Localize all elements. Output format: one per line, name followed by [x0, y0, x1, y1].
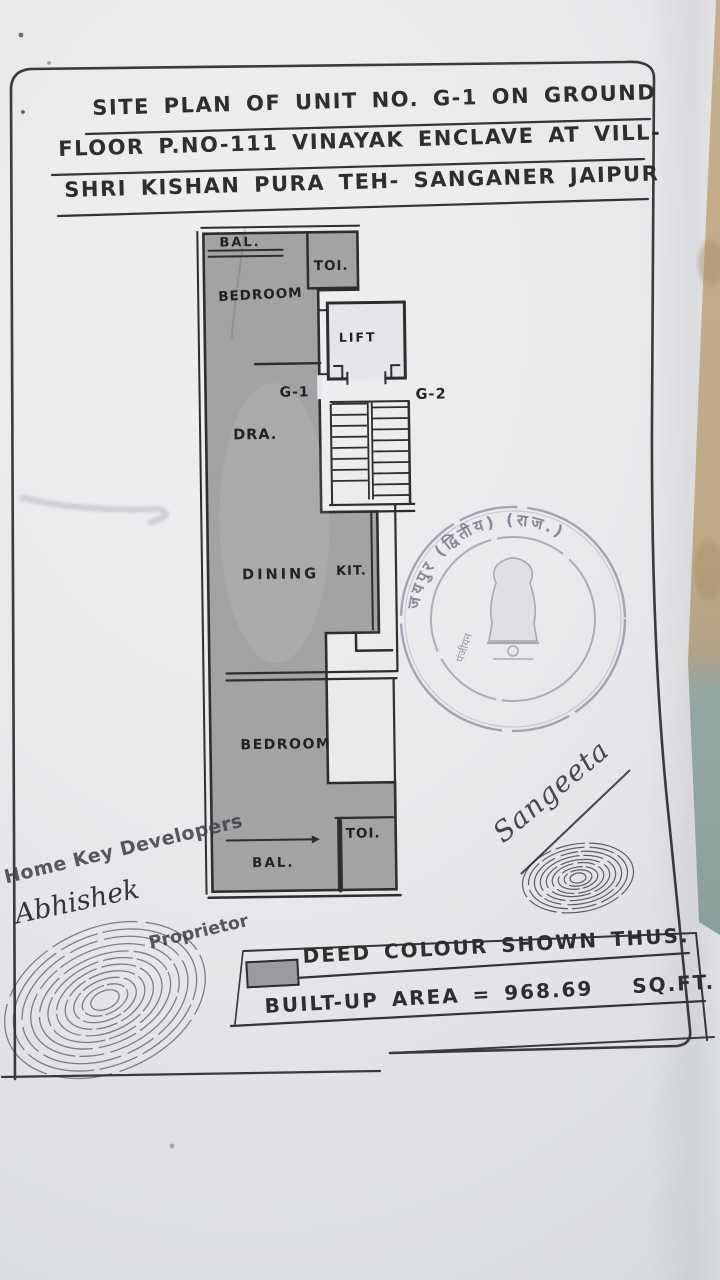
room-label-drawing: DRA. [233, 427, 277, 444]
unit-label-g1: G-1 [279, 384, 309, 400]
room-label-toilet-bottom: TOI. [346, 825, 381, 841]
room-label-dining: DINING [242, 566, 319, 583]
stamp-left-text: पंजीयन [453, 631, 475, 664]
ink-speck [47, 61, 51, 65]
stamp-arc-textpath: जयपुर (द्वितीय) (राज.) [403, 510, 569, 611]
built-up-area-unit: SQ.FT. [632, 970, 716, 998]
ashoka-emblem-icon [487, 558, 539, 659]
thumbprint-left [0, 915, 230, 1085]
ink-speck [170, 1144, 175, 1149]
registrar-round-stamp: जयपुर (द्वितीय) (राज.) पंजीयन [385, 495, 641, 751]
room-label-kitchen: KIT. [336, 564, 367, 579]
smudge-mark [20, 497, 166, 523]
room-label-balcony-top: BAL. [219, 235, 260, 251]
ink-speck [21, 110, 25, 114]
stair-treads-left [332, 404, 368, 481]
scanned-site-plan-photo: { "document": { "title_lines": [ "SITE P… [0, 0, 720, 1280]
stamp-arc-text: जयपुर (द्वितीय) (राज.) [403, 510, 569, 611]
room-label-lift: LIFT [339, 329, 377, 345]
thumbprint-right [508, 830, 648, 930]
stair-treads-right [372, 407, 409, 495]
deed-colour-swatch [245, 959, 299, 989]
unit-label-g2: G-2 [415, 386, 446, 402]
ink-speck [19, 33, 24, 38]
room-label-bedroom-bottom: BEDROOM [240, 736, 331, 753]
room-label-toilet-top: TOI. [314, 258, 349, 274]
room-label-balcony-bottom: BAL. [252, 855, 295, 872]
